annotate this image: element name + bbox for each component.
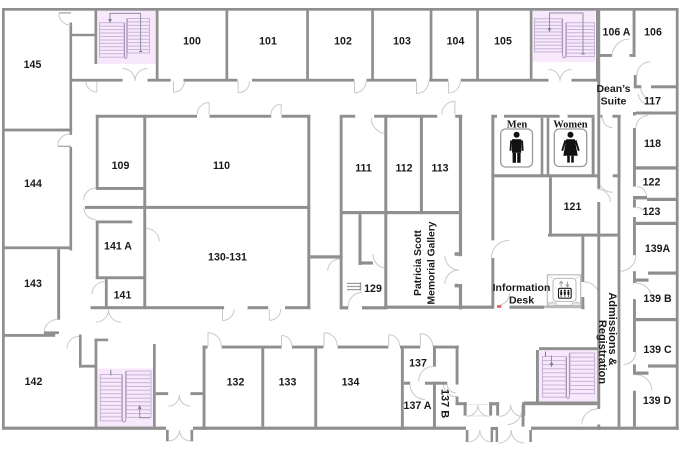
svg-text:133: 133 (279, 377, 297, 389)
svg-text:139 C: 139 C (643, 344, 672, 356)
svg-text:130-131: 130-131 (208, 252, 247, 264)
svg-text:106: 106 (644, 27, 662, 39)
svg-text:118: 118 (644, 138, 661, 150)
svg-text:Men: Men (507, 119, 528, 130)
svg-text:137: 137 (409, 358, 427, 370)
svg-text:110: 110 (213, 160, 230, 172)
svg-text:102: 102 (334, 36, 352, 48)
svg-text:121: 121 (564, 201, 582, 213)
svg-text:104: 104 (447, 36, 465, 48)
svg-text:141 A: 141 A (104, 241, 132, 253)
svg-text:144: 144 (24, 178, 42, 190)
svg-text:139 D: 139 D (643, 395, 672, 407)
svg-text:123: 123 (643, 206, 661, 218)
svg-text:142: 142 (25, 376, 43, 388)
svg-text:Patricia Scott: Patricia Scott (413, 230, 424, 296)
svg-text:100: 100 (183, 36, 201, 48)
svg-text:Suite: Suite (601, 96, 627, 108)
svg-text:109: 109 (112, 160, 130, 172)
svg-text:105: 105 (494, 36, 512, 48)
svg-text:103: 103 (393, 36, 411, 48)
svg-text:Memorial Gallery: Memorial Gallery (427, 221, 438, 304)
svg-text:143: 143 (24, 278, 42, 290)
svg-text:129: 129 (364, 283, 382, 295)
svg-text:117: 117 (644, 96, 661, 108)
svg-text:Registration: Registration (596, 320, 608, 384)
svg-text:106 A: 106 A (603, 27, 631, 39)
svg-text:134: 134 (342, 377, 360, 389)
svg-text:139A: 139A (645, 243, 671, 255)
svg-text:Information: Information (493, 282, 551, 294)
svg-text:141: 141 (114, 290, 132, 302)
svg-text:111: 111 (355, 163, 372, 175)
svg-text:139 B: 139 B (643, 293, 672, 305)
svg-text:122: 122 (643, 177, 661, 189)
svg-text:112: 112 (395, 163, 412, 175)
svg-text:Desk: Desk (509, 295, 534, 307)
svg-text:132: 132 (227, 377, 245, 389)
svg-text:101: 101 (259, 36, 277, 48)
svg-text:137 A: 137 A (404, 400, 432, 412)
svg-text:Dean’s: Dean’s (596, 83, 630, 95)
svg-text:113: 113 (431, 163, 448, 175)
svg-text:145: 145 (24, 59, 42, 71)
svg-text:137 B: 137 B (439, 389, 451, 418)
svg-text:Women: Women (553, 119, 588, 130)
